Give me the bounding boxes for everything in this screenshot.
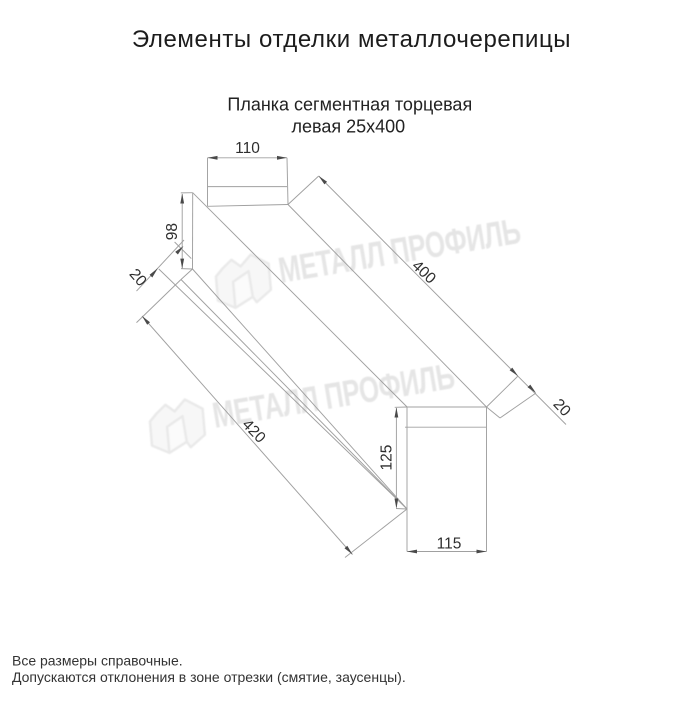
svg-text:125: 125: [379, 445, 396, 471]
svg-text:левая 25х400: левая 25х400: [291, 117, 405, 137]
svg-text:110: 110: [235, 140, 260, 157]
svg-text:Все размеры справочные.: Все размеры справочные.: [12, 653, 183, 669]
svg-text:Планка сегментная торцевая: Планка сегментная торцевая: [227, 95, 472, 115]
svg-text:115: 115: [437, 536, 462, 553]
svg-text:98: 98: [164, 223, 181, 240]
svg-text:Допускаются отклонения в зоне: Допускаются отклонения в зоне отрезки (с…: [12, 669, 406, 685]
svg-text:Элементы отделки металлочерепи: Элементы отделки металлочерепицы: [132, 26, 571, 53]
